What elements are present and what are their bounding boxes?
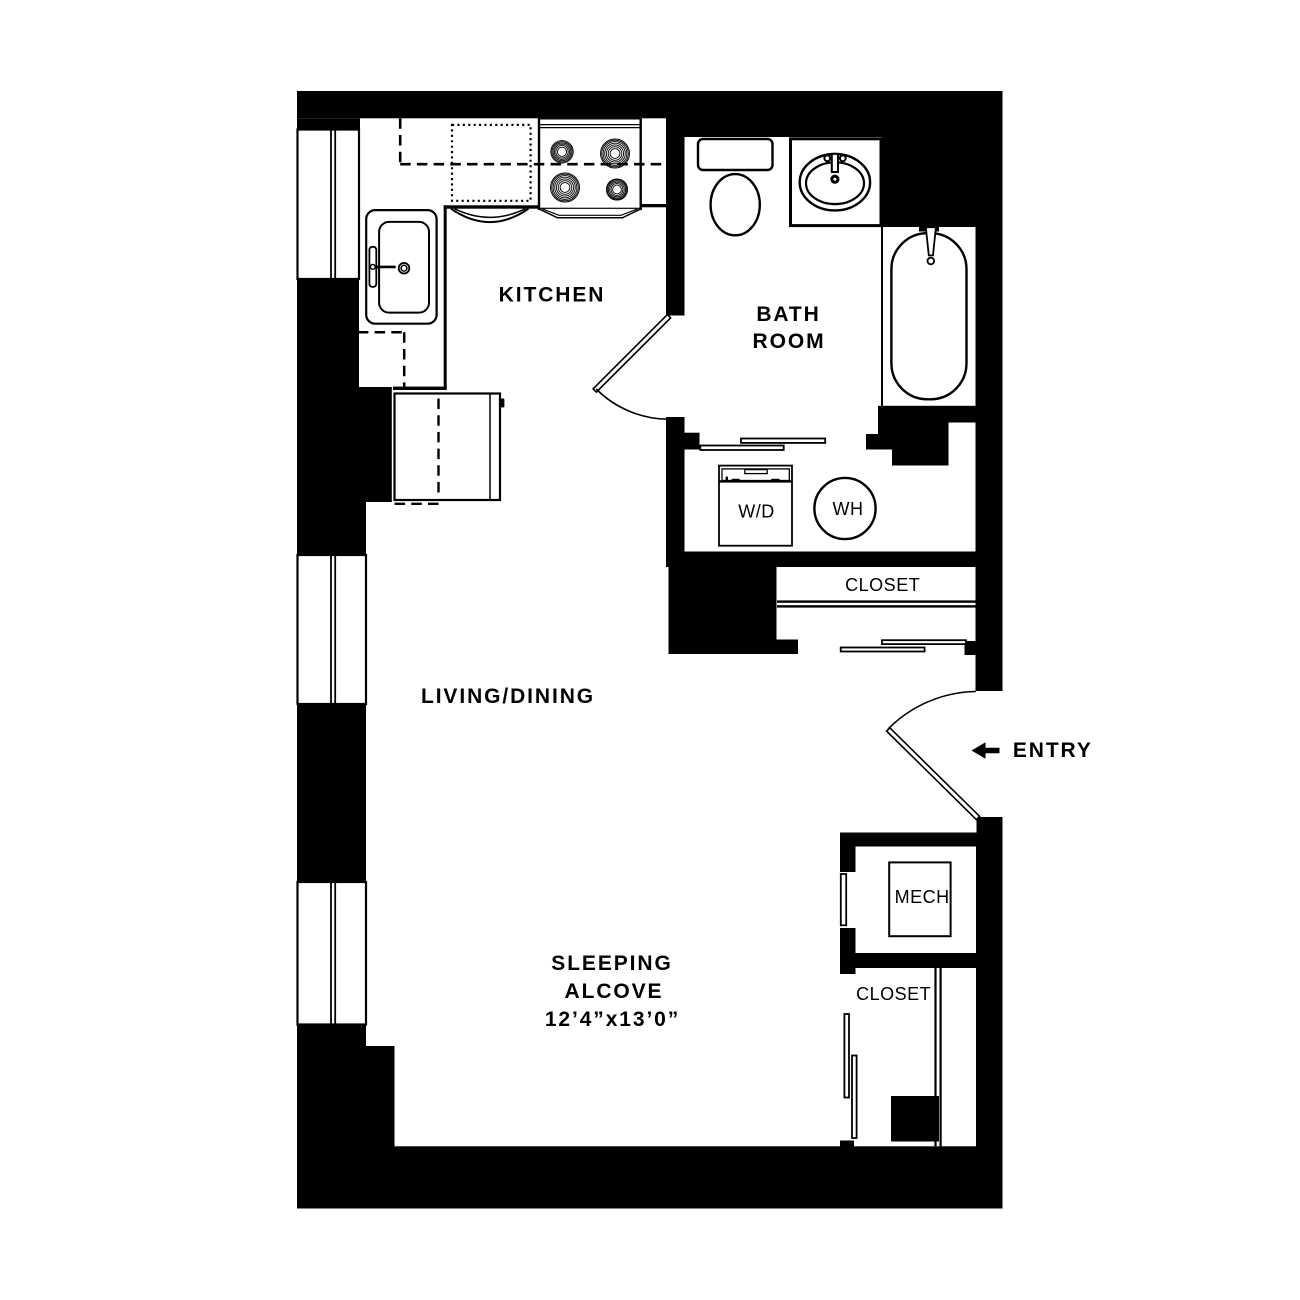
svg-text:ALCOVE: ALCOVE	[565, 980, 664, 1003]
svg-text:MECH: MECH	[895, 887, 950, 907]
svg-text:ENTRY: ENTRY	[1013, 739, 1093, 762]
svg-text:CLOSET: CLOSET	[856, 984, 931, 1004]
svg-text:CLOSET: CLOSET	[845, 575, 920, 595]
svg-text:WH: WH	[833, 499, 864, 519]
svg-text:LIVING/DINING: LIVING/DINING	[421, 685, 595, 708]
svg-text:KITCHEN: KITCHEN	[499, 284, 606, 307]
svg-text:ROOM: ROOM	[753, 330, 826, 353]
svg-text:W/D: W/D	[738, 502, 775, 522]
svg-text:12’4”x13’0”: 12’4”x13’0”	[545, 1008, 680, 1031]
svg-text:BATH: BATH	[756, 303, 820, 326]
svg-text:SLEEPING: SLEEPING	[551, 952, 672, 975]
